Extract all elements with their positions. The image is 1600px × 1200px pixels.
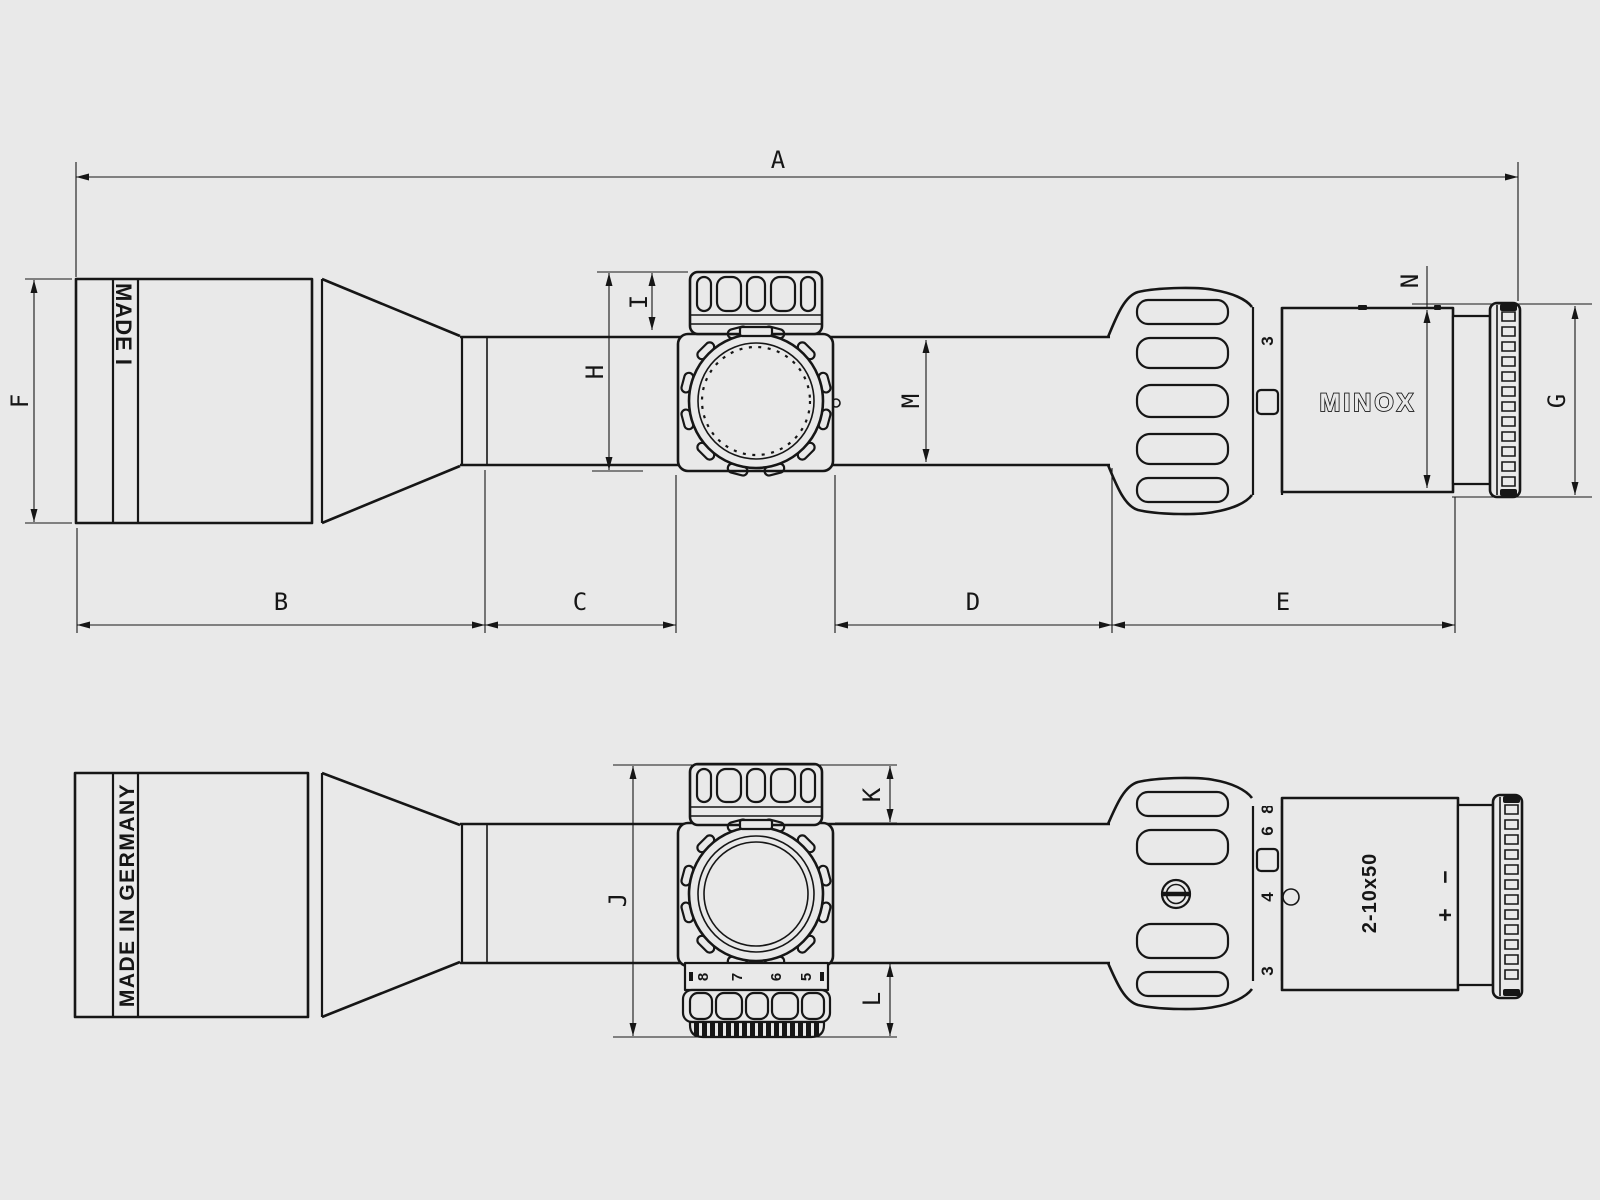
dim-label-g: G (1543, 394, 1571, 408)
wheel-index-notch-top (740, 327, 772, 336)
zoom-index-band-top: 3 (1253, 307, 1282, 495)
objective-print-top: MADE I (111, 283, 136, 366)
diopter-minus-sign: − (1432, 870, 1458, 883)
dim-label-k: K (858, 787, 886, 802)
dim-label-a: A (771, 146, 786, 174)
parallax-wheel-bottom (680, 818, 831, 969)
zoom-index-window-bottom (1257, 849, 1278, 871)
diopter-neck-top (1453, 316, 1490, 484)
dim-label-c: C (573, 588, 587, 616)
turret-scale-number: 6 (768, 973, 785, 981)
dim-label-i: I (625, 295, 653, 309)
dim-label-b: B (274, 588, 288, 616)
dim-label-h: H (581, 365, 609, 379)
objective-bell-bottom: MADE IN GERMANY (75, 773, 322, 1017)
zoom-ring-screw (1161, 880, 1191, 908)
model-designation: 2-10x50 (1359, 853, 1381, 933)
elevation-turret-cap-top (690, 272, 822, 334)
dim-f: F (6, 279, 72, 523)
diopter-ring-top (1490, 303, 1520, 497)
windage-turret-bottom: 8 7 6 5 (683, 963, 830, 1037)
dim-m: M (897, 340, 926, 462)
dim-label-l: L (858, 992, 886, 1006)
diopter-plus-sign: + (1432, 908, 1458, 921)
zoom-ring-top (1108, 288, 1252, 514)
parallax-wheel-top (680, 325, 831, 476)
print-edge-mark (1358, 305, 1367, 310)
dim-label-f: F (6, 394, 34, 408)
objective-print-bottom: MADE IN GERMANY (116, 783, 139, 1007)
zoom-number-partial: 8 (1258, 804, 1277, 813)
zoom-index-window-top (1257, 390, 1278, 414)
objective-taper-bottom (322, 773, 460, 1017)
turret-scale-number: 5 (798, 973, 815, 981)
dim-l: L (835, 963, 897, 1036)
turret-grip-ring (683, 990, 830, 1022)
objective-bell-top: MADE I (76, 279, 322, 523)
objective-taper-top (322, 279, 460, 523)
dim-i: I (625, 273, 653, 330)
dim-label-j: J (604, 893, 632, 907)
eyepiece-housing-bottom: 2-10x50 − + (1282, 798, 1458, 990)
zoom-number: 3 (1258, 966, 1277, 975)
zoom-index-band-bottom: 8 6 4 3 (1253, 804, 1282, 981)
zoom-ring-bottom (1108, 778, 1252, 1009)
dim-label-d: D (966, 588, 980, 616)
top-view: MADE I (6, 146, 1592, 633)
turret-scale-number: 8 (695, 973, 712, 981)
wheel-index-notch-bottom (740, 820, 772, 829)
dim-label-n: N (1396, 274, 1424, 288)
riflescope-dimension-drawing: MADE I (0, 0, 1600, 1200)
technical-drawing-page: MADE I (0, 0, 1600, 1200)
dim-label-m: M (897, 394, 925, 408)
diopter-neck-bottom (1458, 805, 1493, 985)
dim-label-e: E (1276, 588, 1290, 616)
bottom-view: MADE IN GERMANY (75, 764, 1522, 1037)
zoom-number-top-view: 3 (1258, 336, 1277, 345)
zoom-number: 4 (1258, 892, 1277, 902)
print-edge-mark (1434, 305, 1441, 310)
dim-k: K (835, 766, 897, 823)
minox-logo: MINOX (1320, 389, 1417, 417)
turret-scale-number: 7 (729, 973, 746, 981)
elevation-turret-cap-bottom (690, 764, 822, 825)
diopter-ring-bottom (1493, 795, 1522, 998)
zoom-number: 6 (1258, 826, 1277, 835)
